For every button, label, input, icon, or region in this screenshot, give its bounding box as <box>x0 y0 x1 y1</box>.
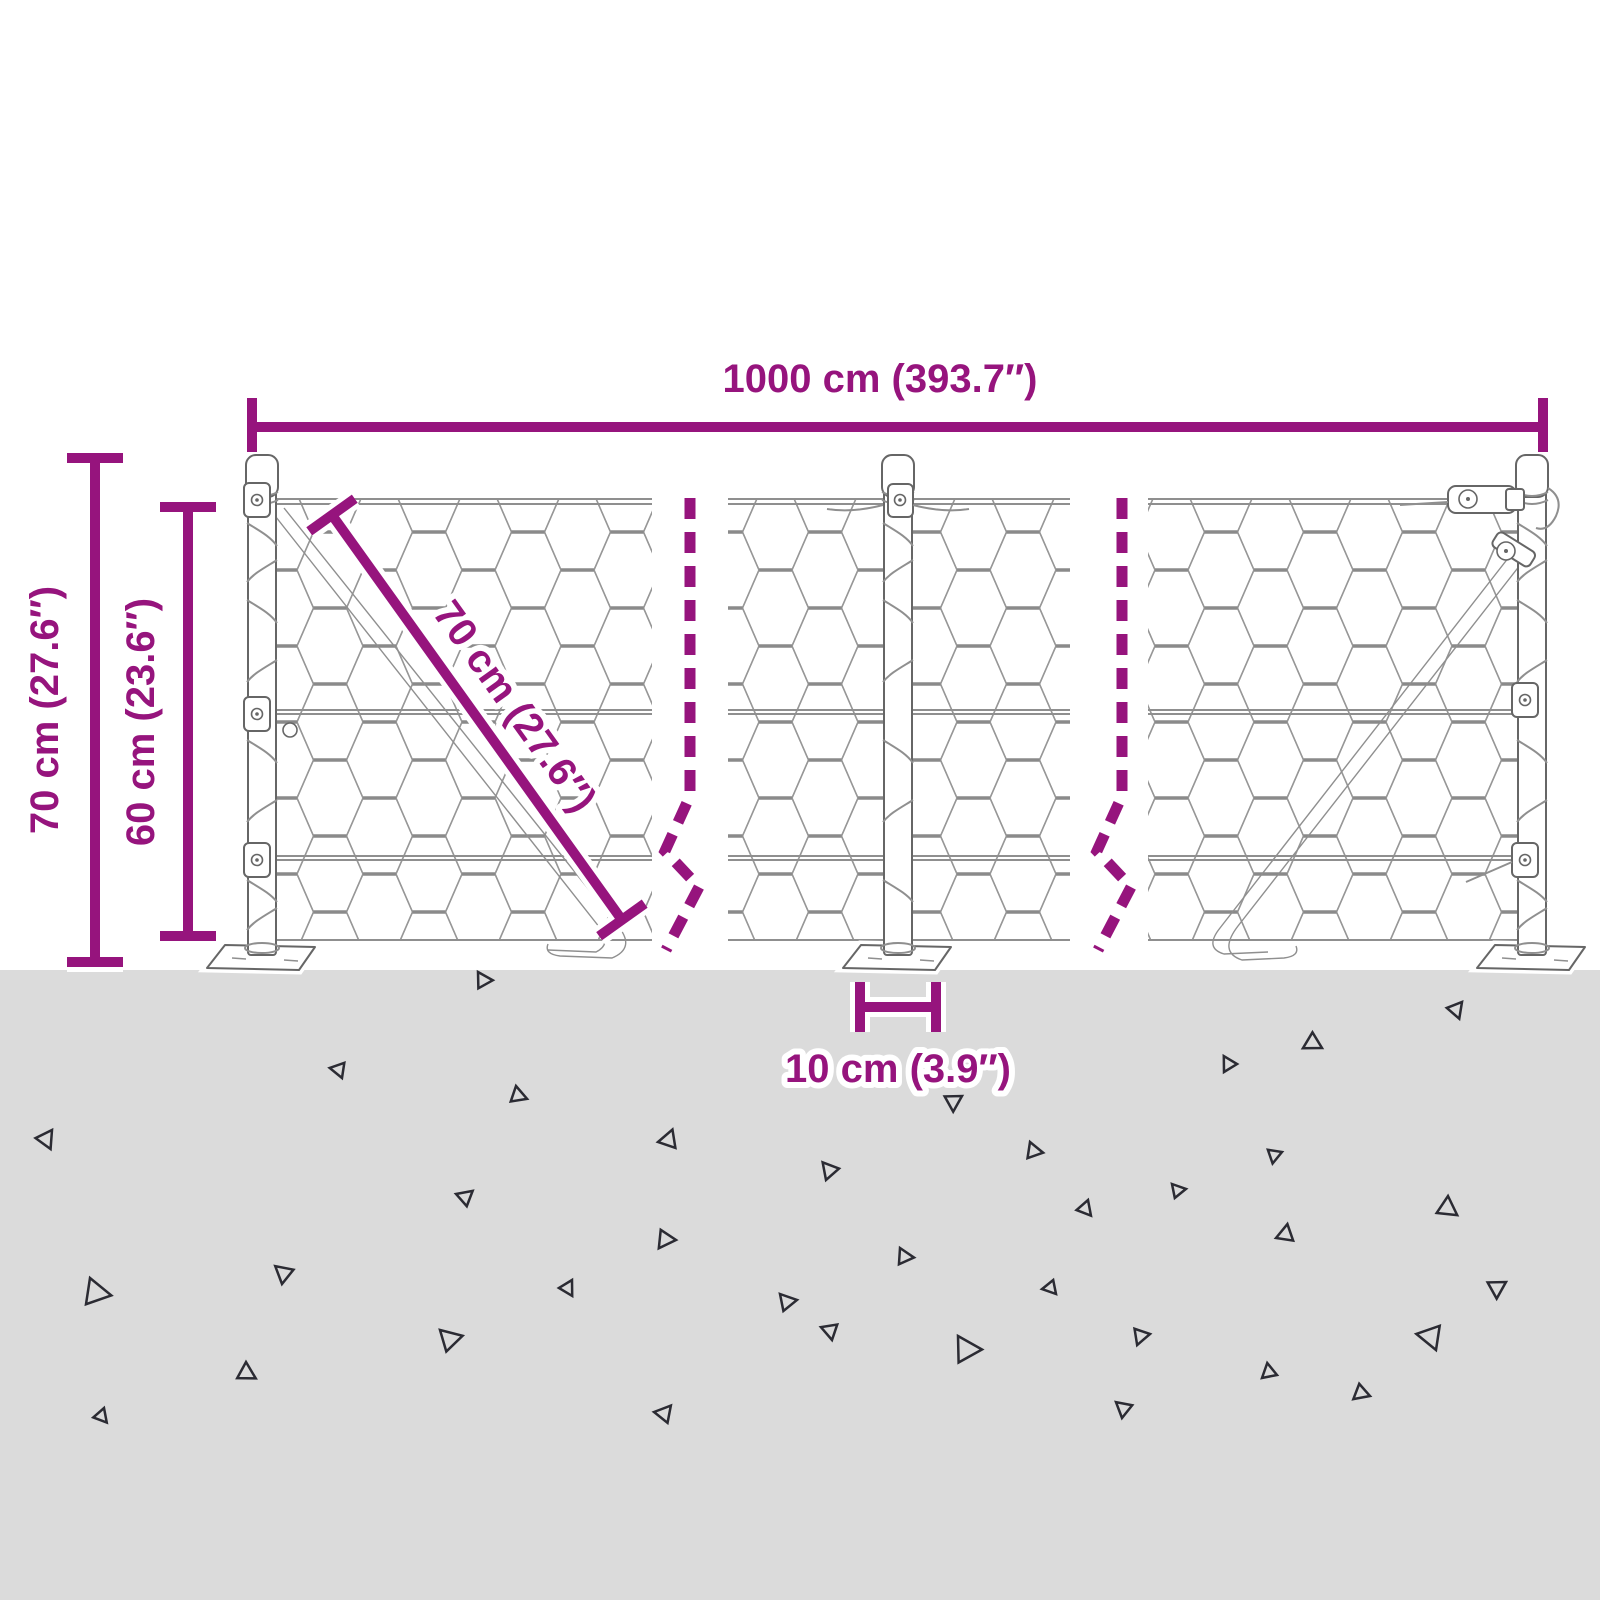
break-line-2 <box>1097 498 1131 950</box>
total-width-label: 1000 cm (393.7″) <box>723 357 1038 401</box>
clamp <box>1512 843 1538 877</box>
dim-total-width: 1000 cm (393.7″) <box>252 357 1543 452</box>
mesh-height-label: 60 cm (23.6″) <box>119 598 163 846</box>
clamp <box>244 483 270 517</box>
post-offset-label: 10 cm (3.9″) <box>785 1047 1011 1091</box>
diagram-stage: 1000 cm (393.7″) 70 cm (27.6″) 60 cm (23… <box>0 0 1600 1600</box>
fence-dimension-diagram: 1000 cm (393.7″) 70 cm (27.6″) 60 cm (23… <box>0 0 1600 1600</box>
dim-mesh-height: 60 cm (23.6″) <box>119 507 216 936</box>
clamp <box>244 697 270 731</box>
post-height-label: 70 cm (27.6″) <box>23 586 67 834</box>
clamp <box>888 484 913 517</box>
dim-post-height: 70 cm (27.6″) <box>23 458 123 962</box>
clamp <box>1512 683 1538 717</box>
clamp <box>244 843 270 877</box>
break-line-1 <box>665 498 699 950</box>
post-body <box>884 490 912 955</box>
mesh-section-3 <box>1148 500 1518 941</box>
wire-eyelet <box>283 723 297 737</box>
fence <box>207 455 1585 970</box>
